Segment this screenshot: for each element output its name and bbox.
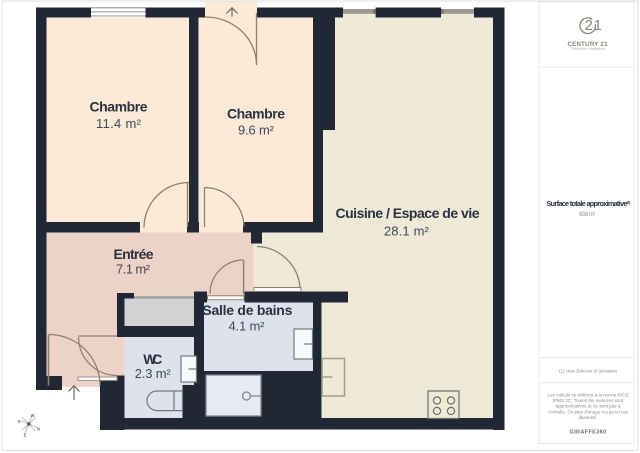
- svg-text:W: W: [31, 413, 35, 418]
- svg-text:GIRAFFE360: GIRAFFE360: [570, 430, 607, 436]
- svg-text:l'échelle. Ce plan d'image n'a: l'échelle. Ce plan d'image n'a qu'un but: [548, 409, 628, 414]
- svg-text:9.6 m²: 9.6 m²: [238, 123, 275, 138]
- svg-text:Les calculs se réfèrent à la n: Les calculs se réfèrent à la norme RICS: [547, 393, 628, 398]
- svg-text:28.1 m²: 28.1 m²: [384, 224, 430, 239]
- svg-text:N: N: [37, 426, 40, 431]
- svg-text:S: S: [18, 419, 21, 424]
- svg-text:Salle de bains: Salle de bains: [202, 302, 292, 318]
- svg-text:Chambre: Chambre: [227, 106, 285, 122]
- svg-text:7.1 m²: 7.1 m²: [116, 262, 151, 277]
- svg-text:11.4 m²: 11.4 m²: [96, 116, 142, 131]
- svg-text:illustratif.: illustratif.: [579, 415, 597, 420]
- svg-text:Entrée: Entrée: [114, 246, 154, 262]
- svg-text:E: E: [24, 432, 27, 437]
- svg-text:4.1 m²: 4.1 m²: [229, 319, 266, 334]
- svg-text:2.3 m²: 2.3 m²: [135, 366, 172, 381]
- svg-text:WC: WC: [143, 351, 162, 367]
- svg-text:(1) Hors Balcons et terrasses: (1) Hors Balcons et terrasses: [559, 369, 618, 374]
- svg-text:Chambre: Chambre: [90, 99, 148, 115]
- svg-text:21: 21: [585, 18, 602, 34]
- svg-text:Patrimoine Immobilier: Patrimoine Immobilier: [571, 47, 606, 51]
- svg-text:approximatives et ne sont pas: approximatives et ne sont pas à: [556, 404, 621, 409]
- svg-text:63.6 m²: 63.6 m²: [579, 212, 595, 218]
- svg-text:Surface totale approximative(1: Surface totale approximative(1): [547, 199, 632, 208]
- svg-text:Cuisine / Espace de vie: Cuisine / Espace de vie: [336, 205, 480, 221]
- svg-text:IPMS 3C. Toutes les mesures so: IPMS 3C. Toutes les mesures sont: [553, 398, 624, 403]
